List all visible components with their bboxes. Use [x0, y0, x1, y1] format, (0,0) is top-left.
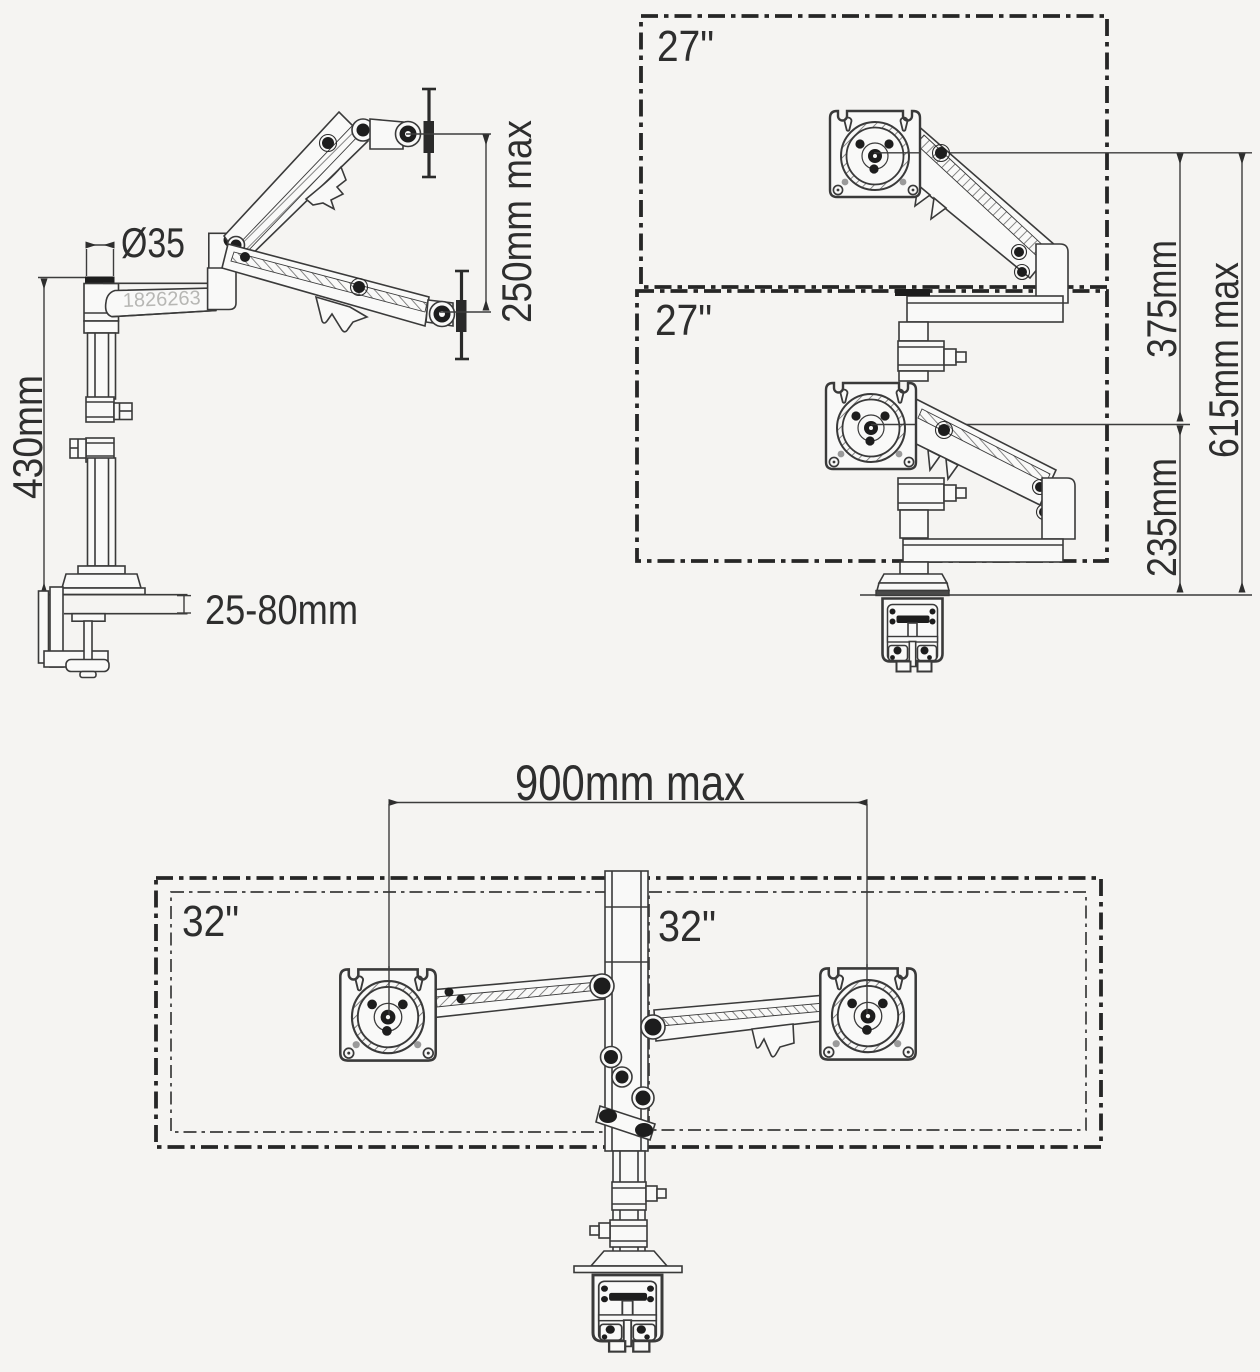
svg-text:235mm: 235mm: [1138, 458, 1185, 577]
svg-text:25-80mm: 25-80mm: [205, 586, 358, 633]
svg-text:27": 27": [657, 22, 714, 71]
svg-text:32": 32": [182, 897, 239, 946]
svg-text:27": 27": [655, 296, 712, 345]
svg-text:375mm: 375mm: [1138, 240, 1185, 358]
svg-text:1826263: 1826263: [122, 287, 201, 312]
svg-text:430mm: 430mm: [4, 375, 51, 499]
svg-text:Ø35: Ø35: [121, 219, 185, 266]
svg-text:615mm max: 615mm max: [1200, 262, 1247, 458]
svg-text:32": 32": [658, 902, 716, 951]
svg-text:250mm max: 250mm max: [493, 120, 540, 323]
